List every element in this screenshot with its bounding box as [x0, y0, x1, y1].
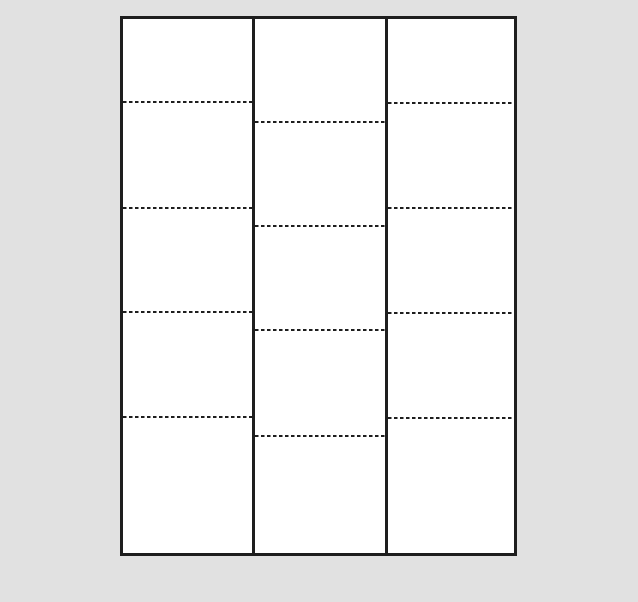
perforation-dotted-line-left: [123, 311, 252, 314]
perforation-dotted-line-right: [388, 207, 514, 210]
column-divider-line: [385, 19, 388, 553]
perforation-dotted-line-left: [123, 416, 252, 419]
column-divider-line: [252, 19, 255, 553]
perforation-dotted-line-right: [388, 312, 514, 315]
perforation-dotted-line-middle: [255, 329, 385, 332]
diagram-canvas: [0, 0, 638, 602]
perforation-dotted-line-middle: [255, 121, 385, 124]
label-sheet: [120, 16, 517, 556]
perforation-dotted-line-right: [388, 417, 514, 420]
perforation-dotted-line-left: [123, 207, 252, 210]
perforation-dotted-line-left: [123, 101, 252, 104]
perforation-dotted-line-right: [388, 102, 514, 105]
perforation-dotted-line-middle: [255, 435, 385, 438]
perforation-dotted-line-middle: [255, 225, 385, 228]
